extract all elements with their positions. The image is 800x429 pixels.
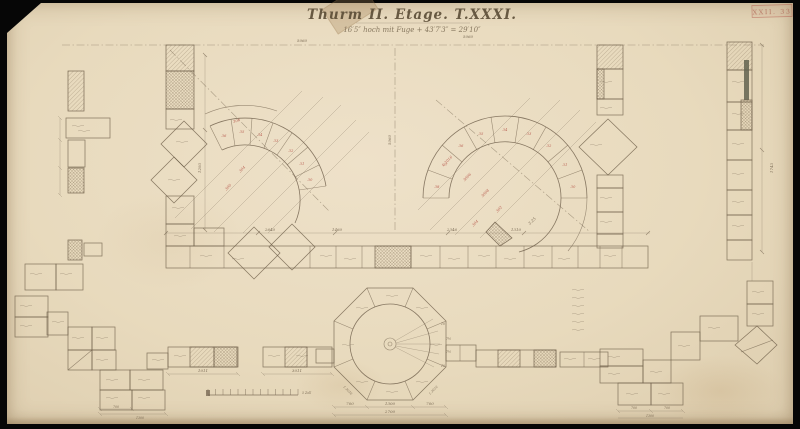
voussoir-number: 35 xyxy=(479,131,484,136)
scale-bar: 5 Zoll xyxy=(206,389,311,396)
scanned-drawing-sheet: Thurm II. Etage. T.XXXI. 16′5″ hoch mit … xyxy=(0,0,800,429)
dim-label: 2700 xyxy=(384,409,396,414)
dim-label: 3.25 xyxy=(527,216,537,226)
fan-ray-label: 300 xyxy=(224,182,233,191)
dim-label: 1011 xyxy=(198,368,208,373)
voussoir-number: 34 xyxy=(258,132,263,137)
dim-label: 1310 xyxy=(511,227,522,232)
dimension-labels: 5060 2640 1460 2346 1310 5060 1293 1743 … xyxy=(197,38,774,373)
voussoir-number: 31 xyxy=(300,161,305,166)
left-margin-strip xyxy=(58,71,110,197)
fan-ray-label: 304 xyxy=(238,164,247,173)
sector-angle-label: 10 xyxy=(441,364,445,368)
fan-ray-label: 3008 xyxy=(480,187,491,198)
subtitle-note: 5060 xyxy=(463,34,474,39)
left-step-blocks: 700 1300 xyxy=(15,240,168,420)
right-margin-strip xyxy=(727,42,752,260)
dim-label: 700 xyxy=(426,401,434,406)
dim-label: 700 xyxy=(113,405,119,409)
dim-label: 700 xyxy=(346,401,354,406)
dim-label: 700 xyxy=(664,406,670,410)
voussoir-number: 35 xyxy=(240,129,245,134)
dim-label: 1.3016 xyxy=(428,385,439,396)
drawing-subtitle: 16′5″ hoch mit Fuge + 43′7′3″ = 29′10″ xyxy=(343,26,481,34)
drawing-canvas: Thurm II. Etage. T.XXXI. 16′5″ hoch mit … xyxy=(0,0,800,429)
voussoir-number: 33 xyxy=(527,131,532,136)
sector-angle-label: 7½ xyxy=(446,349,451,354)
dim-label: 2346 xyxy=(446,227,458,232)
voussoir-number: 30 xyxy=(571,184,576,189)
dim-label: 1.3016 xyxy=(342,385,353,396)
fan-ray-label: 3006 xyxy=(462,171,473,182)
dim-label: 1300 xyxy=(136,416,144,420)
voussoir-number: 37 xyxy=(443,162,448,167)
voussoir-fan-left: 306 304 300 36 35 34 33 32 31 30 xyxy=(175,91,369,233)
dim-label: 1300 xyxy=(385,401,396,406)
voussoir-number: 31 xyxy=(563,162,568,167)
drawing-title: Thurm II. Etage. T.XXXI. xyxy=(307,7,517,23)
voussoir-number: 32 xyxy=(289,148,294,153)
tower-right-wall xyxy=(579,45,637,248)
dim-label: 1460 xyxy=(332,227,343,232)
stamp-number: XXII. 33 xyxy=(753,7,792,16)
dim-label: 5060 xyxy=(297,38,308,43)
voussoir-number: 32 xyxy=(547,143,552,148)
title-block: Thurm II. Etage. T.XXXI. 16′5″ hoch mit … xyxy=(307,7,517,39)
fan-ray-label: 302 xyxy=(495,204,504,213)
right-step-blocks: 700 700 1300 xyxy=(600,262,777,418)
scale-bar-label: 5 Zoll xyxy=(302,391,311,395)
sector-angle-label: 7½ xyxy=(446,336,451,341)
pencil-scribbles xyxy=(20,81,764,398)
voussoir-number: 36 xyxy=(222,133,227,138)
voussoir-number: 36 xyxy=(459,143,464,148)
tower-left-wall xyxy=(151,45,207,246)
fan-ray-label: 304 xyxy=(471,218,480,227)
sector-angle-label: 10 xyxy=(441,322,445,326)
voussoir-number: 38 xyxy=(435,184,440,189)
block-strip-d xyxy=(560,352,608,367)
catalog-stamp: XXII. 33 xyxy=(752,4,792,17)
voussoir-number: 30 xyxy=(308,177,313,182)
dim-label: 1293 xyxy=(197,162,202,173)
dim-label: 3011 xyxy=(292,368,302,373)
voussoir-fan-right: 1.3016 3006 3008 302 304 38 37 36 35 34 … xyxy=(418,98,596,252)
dim-label: 5060 xyxy=(387,134,392,145)
block-strip-a xyxy=(147,347,240,376)
voussoir-number: 33 xyxy=(274,138,279,143)
stair-tower-plan: 10 7½ 7½ 10 700 1300 700 2700 1.3016 1.3… xyxy=(316,288,476,417)
dim-label: 700 xyxy=(631,406,637,410)
dim-label: 1743 xyxy=(769,162,774,173)
voussoir-number: 34 xyxy=(503,127,508,132)
dim-label: 1300 xyxy=(646,414,654,418)
block-strip-c xyxy=(476,350,556,367)
bottom-course-row xyxy=(166,224,648,279)
